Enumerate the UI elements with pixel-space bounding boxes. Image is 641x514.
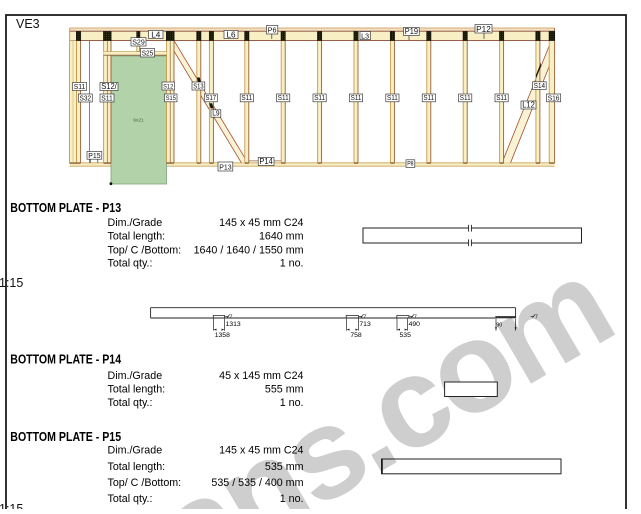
svg-text:Dim./Grade: Dim./Grade <box>108 217 163 229</box>
svg-text:P15: P15 <box>88 151 100 160</box>
svg-text:1640 mm: 1640 mm <box>259 231 304 243</box>
svg-text:Dim./Grade: Dim./Grade <box>108 444 163 456</box>
svg-text:S32: S32 <box>80 94 92 103</box>
svg-text:758: 758 <box>350 332 362 339</box>
svg-text:S11: S11 <box>460 95 471 102</box>
svg-text:S13: S13 <box>193 83 204 90</box>
svg-text:9x21: 9x21 <box>133 117 144 123</box>
svg-text:P14: P14 <box>259 157 273 166</box>
svg-text:1:15: 1:15 <box>0 502 23 509</box>
svg-text:BOTTOM PLATE - P13: BOTTOM PLATE - P13 <box>10 201 121 215</box>
svg-text:L12: L12 <box>522 101 535 110</box>
svg-text:S15: S15 <box>166 95 176 102</box>
svg-text:7: 7 <box>229 314 232 320</box>
svg-text:L6: L6 <box>226 30 236 39</box>
svg-text:S11: S11 <box>496 95 507 102</box>
svg-text:Dim./Grade: Dim./Grade <box>108 370 163 382</box>
svg-text:L4: L4 <box>151 30 161 39</box>
svg-text:1640 / 1640 / 1550 mm: 1640 / 1640 / 1550 mm <box>194 244 304 256</box>
svg-text:S16: S16 <box>548 93 560 102</box>
svg-text:Total qty.:: Total qty.: <box>108 258 153 270</box>
svg-text:7: 7 <box>363 314 366 320</box>
svg-text:1:15: 1:15 <box>0 276 23 290</box>
svg-text:Total length:: Total length: <box>108 231 166 243</box>
svg-text:P19: P19 <box>405 27 418 36</box>
svg-text:S11: S11 <box>314 95 325 102</box>
svg-text:45 x 145 mm C24: 45 x 145 mm C24 <box>219 370 303 382</box>
svg-text:S11: S11 <box>278 95 289 102</box>
svg-text:S29: S29 <box>132 38 145 47</box>
svg-text:1358: 1358 <box>215 332 230 339</box>
svg-text:S11: S11 <box>74 82 86 91</box>
svg-text:S11: S11 <box>423 95 434 102</box>
svg-text:S11: S11 <box>241 95 252 102</box>
svg-text:BOTTOM PLATE - P15: BOTTOM PLATE - P15 <box>10 430 121 444</box>
svg-text:Total length:: Total length: <box>108 383 166 395</box>
svg-text:145 x 45 mm C24: 145 x 45 mm C24 <box>219 217 303 229</box>
svg-text:S11: S11 <box>387 95 398 102</box>
svg-text:S11: S11 <box>101 94 113 103</box>
svg-text:S17: S17 <box>206 95 217 102</box>
svg-text:BOTTOM PLATE - P14: BOTTOM PLATE - P14 <box>10 353 121 367</box>
svg-text:P12: P12 <box>476 25 491 34</box>
svg-text:L3: L3 <box>361 31 369 40</box>
svg-text:S25: S25 <box>142 49 154 58</box>
svg-text:Top/ C /Bottom:: Top/ C /Bottom: <box>108 244 182 256</box>
svg-text:1 no.: 1 no. <box>280 258 304 270</box>
svg-text:L9: L9 <box>212 109 219 118</box>
svg-text:S12: S12 <box>163 83 173 90</box>
svg-text:P13: P13 <box>219 163 231 172</box>
svg-text:713: 713 <box>359 321 371 328</box>
svg-text:VE3: VE3 <box>16 17 40 31</box>
svg-text:S11: S11 <box>351 95 362 102</box>
svg-text:S14: S14 <box>534 81 545 90</box>
svg-text:P6: P6 <box>268 26 277 35</box>
svg-text:P8: P8 <box>407 161 414 168</box>
svg-text:S12/: S12/ <box>101 82 117 91</box>
svg-text:Total qty.:: Total qty.: <box>108 397 153 409</box>
svg-text:1313: 1313 <box>226 321 241 328</box>
